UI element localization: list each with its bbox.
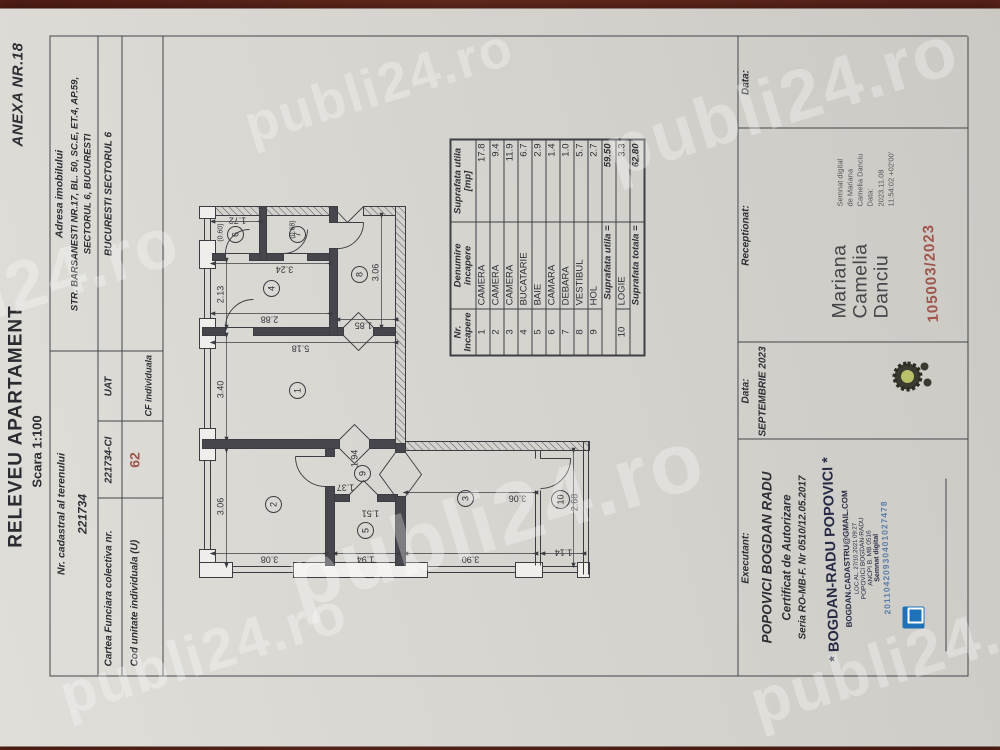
cell-nr: 6 — [546, 309, 560, 356]
subtotal-row: Suprafata utila = 59.50 — [602, 140, 616, 356]
dim-label: 3.06 — [371, 264, 381, 282]
room-circle-8: 8 — [355, 272, 365, 277]
signature-line — [946, 479, 947, 652]
signature-detail-line: Semnat digital — [836, 127, 846, 207]
dim-label: 5.18 — [292, 344, 310, 354]
cell-nr: 5 — [532, 309, 546, 356]
data2-label: Data: — [741, 37, 752, 129]
cell-name: DEBARA — [560, 222, 574, 309]
col-header-area: Suprafata utila[mp] — [451, 140, 476, 222]
signature-detail-line: 2023.11.08 — [876, 127, 886, 207]
table-row: 7DEBARA1.0 — [560, 140, 574, 356]
cell-name: BUCATARIE — [518, 222, 532, 309]
certificate-line1: Certificat de Autorizare — [782, 444, 794, 672]
wall-exterior-left-part-right — [406, 442, 590, 451]
signature-detail-line: 11:54:02 +02'00' — [886, 127, 896, 207]
table-row: 9HOL2.7 — [588, 140, 602, 356]
photo-of-document: ANEXA NR.18 RELEVEU APARTAMENT Scara 1:1… — [0, 0, 1000, 750]
table-row: 8VESTIBUL5.7 — [574, 140, 588, 356]
signature-name-line: Mariana — [830, 209, 851, 319]
total-label: Suprafata totala = — [630, 222, 645, 356]
room-circle-10: 10 — [556, 494, 566, 504]
dim-label: 3.24 — [276, 265, 294, 275]
dim-label: (0.68) — [290, 220, 297, 238]
table-row: 5BAIE2.9 — [532, 140, 546, 356]
cell-nr: 8 — [574, 309, 588, 356]
dim-label: 1.14 — [555, 548, 573, 558]
dim-label: 1.94 — [350, 450, 360, 468]
room-areas-table: Nr.Incapere Denumireincapere Suprafata u… — [450, 139, 646, 357]
cell-name: VESTIBUL — [574, 222, 588, 309]
dim-label: 2.68 — [570, 494, 580, 512]
wall-left-piers — [200, 563, 590, 578]
room-circle-5: 5 — [361, 528, 371, 533]
cell-mp: 11.9 — [504, 140, 518, 222]
total-value: 62.80 — [630, 140, 645, 222]
cell-nr: 3 — [504, 309, 518, 356]
dim-label: 1.37 — [337, 483, 355, 493]
cell-name: CAMERA — [476, 222, 490, 309]
wall-top-piers — [200, 207, 216, 575]
cell-mp: 5.7 — [574, 140, 588, 222]
signature-detail-line: Data: — [866, 127, 876, 207]
digital-signature-icon — [903, 607, 925, 629]
cell-name: BAIE — [532, 222, 546, 309]
dim-label: 2.88 — [261, 315, 279, 325]
dim-label: 1.94 — [357, 555, 375, 565]
receptionat-label: Receptionat: — [741, 129, 752, 343]
cell-mp: 3.3 — [616, 140, 630, 222]
table-row: 6CAMARA1.4 — [546, 140, 560, 356]
data-label: Data: — [741, 343, 752, 440]
cell-nr: 2 — [490, 309, 504, 356]
table-row: 2CAMERA9.4 — [490, 140, 504, 356]
dim-label: 3.06 — [509, 494, 527, 504]
room-circle-9: 9 — [358, 471, 368, 476]
signature-name-line: Camelia — [851, 209, 872, 319]
total-row: Suprafata totala = 62.80 — [630, 140, 645, 356]
cell-mp: 1.0 — [560, 140, 574, 222]
room-circle-6: 6 — [231, 232, 241, 237]
cell-name: LOGIE — [616, 222, 630, 309]
table-row: 1CAMERA17.8 — [476, 140, 490, 356]
dim-label: 1.72 — [229, 216, 247, 226]
room-circle-1: 1 — [293, 388, 303, 393]
cell-mp: 2.7 — [588, 140, 602, 222]
dim-label: 2.13 — [216, 286, 226, 304]
executant-name: POPOVICI BOGDAN RADU — [760, 444, 775, 672]
cell-name: CAMARA — [546, 222, 560, 309]
dim-label: 3.90 — [462, 555, 480, 565]
cell-nr: 9 — [588, 309, 602, 356]
door-triangles — [333, 207, 422, 497]
signature-name-line: Danciu — [872, 209, 893, 319]
signature-detail-line: Camelia Danciu — [856, 127, 866, 207]
data-value: SEPTEMBRIE 2023 — [758, 342, 769, 442]
subtotal-label: Suprafata utila = — [602, 222, 616, 356]
cell-nr: 1 — [476, 309, 490, 356]
dim-label: 3.08 — [261, 555, 279, 565]
table-header-row: Nr.Incapere Denumireincapere Suprafata u… — [451, 140, 476, 356]
round-stamp — [878, 337, 948, 407]
surveyor-stamp: * BOGDAN-RADU POPOVICI * BOGDAN.CADASTRU… — [819, 432, 895, 684]
room-circle-2: 2 — [269, 502, 279, 507]
cell-nr: 7 — [560, 309, 574, 356]
table-row: 4BUCATARIE6.7 — [518, 140, 532, 356]
room-circle-3: 3 — [461, 496, 471, 501]
dim-label: (0.60) — [218, 223, 225, 241]
cell-name: CAMERA — [490, 222, 504, 309]
col-header-name: Denumireincapere — [451, 222, 476, 309]
cell-nr: 10 — [616, 309, 630, 356]
dim-label: 1.85 — [355, 321, 373, 331]
col-header-nr: Nr.Incapere — [451, 309, 476, 356]
cell-nr: 4 — [518, 309, 532, 356]
document-page: ANEXA NR.18 RELEVEU APARTAMENT Scara 1:1… — [0, 9, 1000, 747]
cell-name: CAMERA — [504, 222, 518, 309]
dim-label: 1.51 — [362, 509, 380, 519]
dim-label: 3.06 — [216, 498, 226, 516]
cell-mp: 6.7 — [518, 140, 532, 222]
signature-details: Semnat digital de Mariana Camelia Danciu… — [836, 127, 897, 207]
wall-exterior-bottom-right-part — [396, 207, 406, 444]
dim-label: 3.40 — [216, 381, 226, 399]
room-circle-4: 4 — [267, 286, 277, 291]
cell-name: HOL — [588, 222, 602, 309]
signature-detail-line: de Mariana — [846, 127, 856, 207]
cell-mp: 2.9 — [532, 140, 546, 222]
cell-mp: 17.8 — [476, 140, 490, 222]
cell-mp: 1.4 — [546, 140, 560, 222]
subtotal-value: 59.50 — [602, 140, 616, 222]
cell-mp: 9.4 — [490, 140, 504, 222]
signature-name: Mariana Camelia Danciu — [830, 209, 893, 319]
certificate-line2: Seria RO-MB-F. Nr 0510/12.05.2017 — [798, 444, 809, 672]
logie-row: 10LOGIE3.3 — [616, 140, 630, 356]
table-row: 3CAMERA11.9 — [504, 140, 518, 356]
executant-label: Executant: — [741, 440, 752, 677]
